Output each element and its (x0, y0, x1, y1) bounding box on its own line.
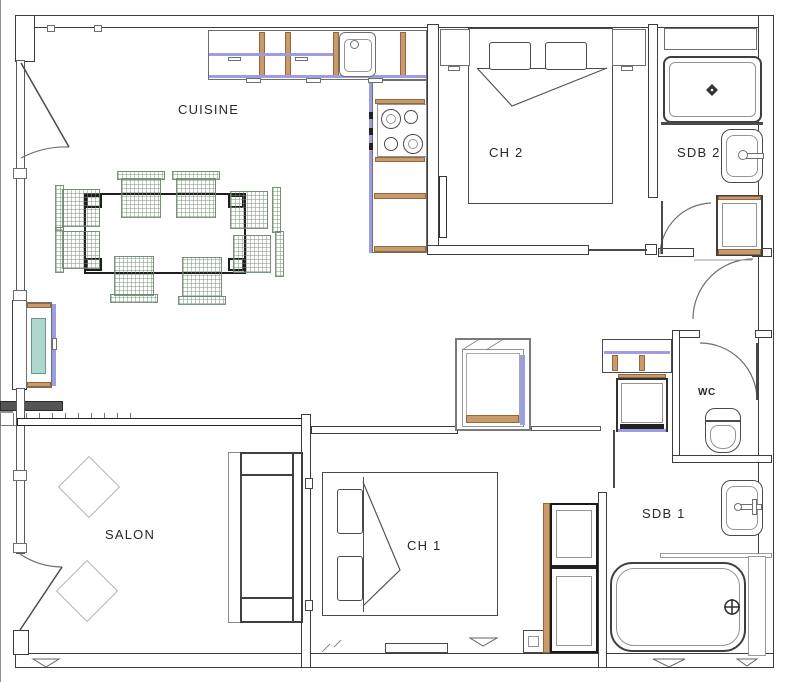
cooktop-burner-inner (408, 139, 418, 149)
floor-dash-mark (322, 640, 341, 652)
nightstand (612, 29, 646, 66)
window-sill-mark (13, 543, 27, 553)
closet-hall-accent (520, 355, 525, 425)
partition-sdb1-entry (613, 430, 615, 488)
shelf-unit-accent (604, 351, 670, 354)
window-left-upper (16, 60, 25, 303)
room-label-wc: WC (698, 387, 716, 398)
sdb2-shelf (664, 28, 757, 50)
vestibule-door-arc (693, 259, 753, 319)
dining-chair-back (55, 185, 64, 231)
bathtub-panel (748, 556, 766, 656)
radiator-kitchen-foot (94, 25, 102, 32)
dining-chair-back (178, 296, 226, 305)
wall-ch2-bottom (427, 245, 589, 255)
dining-chair-back (117, 171, 165, 180)
entry-door-leaf (21, 63, 69, 147)
pouf (56, 560, 118, 622)
salon-door-arc (20, 554, 62, 567)
washer-sdb2-trim (718, 249, 761, 255)
bed-ch1-sheet-line (363, 477, 364, 612)
wall-kitchen-ch2 (427, 24, 439, 253)
dining-chair (230, 191, 268, 229)
wall-ch2-sdb2 (648, 24, 658, 198)
counter-column-divider (375, 157, 425, 162)
pillow (337, 489, 363, 534)
wall-wc-top-right (755, 330, 772, 338)
pouf (58, 456, 120, 518)
dining-chair (176, 178, 216, 218)
window-sill-mark (13, 290, 27, 301)
wall-top (15, 15, 772, 28)
room-label-ch1: CH 1 (407, 538, 441, 553)
window-left-lower-glass (0, 239, 1, 401)
closet-hall-inner2 (466, 353, 520, 423)
wall-hall-connector (531, 426, 601, 431)
nightstand (440, 29, 470, 66)
washer-hall-trim (618, 374, 666, 378)
closet-hall-shelf (466, 415, 519, 423)
room-label-ch2: CH 2 (489, 145, 523, 160)
bathtub-sdb1-inner (616, 568, 740, 646)
sofa-backrest (292, 452, 303, 623)
dining-chair (62, 189, 100, 227)
cooktop-burner-inner (386, 114, 396, 124)
pillow (337, 556, 363, 601)
wall-sdb2-bottom-left (658, 248, 694, 257)
faucet-sdb1-handle (752, 499, 757, 515)
room-label-sdb1: SDB 1 (642, 506, 686, 521)
wall-ch1-top (311, 426, 458, 434)
faucet-sdb1-knob (734, 503, 742, 511)
cooktop-knob (369, 143, 373, 150)
window-left-upper-glass (0, 0, 1, 239)
dining-chair-back (110, 294, 158, 303)
dining-chair-back (275, 231, 284, 277)
cabinet-handle (246, 78, 261, 83)
wall-ch1-sdb1 (598, 492, 607, 668)
wall-cabinet-left-bottom (27, 382, 51, 387)
shower-sdb2-inner (669, 62, 756, 117)
floor-plan: CUISINE CH 2 SDB 2 SALON CH 1 SDB 1 WC (0, 0, 800, 682)
radiator-teal (31, 318, 46, 374)
bed-ch2-side (0, 582, 1, 682)
dining-chair (233, 235, 271, 273)
room-label-sdb2: SDB 2 (677, 145, 721, 160)
counter-column-divider (374, 193, 426, 199)
dining-chair (182, 257, 222, 297)
wall-wc-bottom (672, 455, 772, 463)
kitchen-sink-drain (350, 40, 359, 49)
cabinet-handle (295, 57, 308, 61)
cooktop-burner (404, 110, 418, 124)
cabinet-handle (228, 57, 241, 61)
side-unit-ch1-inner (528, 636, 539, 647)
shelf-unit-divider (639, 355, 645, 371)
salon-door-leaf (20, 567, 62, 630)
shelf-unit-divider (612, 355, 618, 371)
wall-left-bottom-block (13, 630, 29, 655)
radiator-ch2 (439, 176, 447, 238)
washer-hall-panel (620, 424, 664, 429)
nightstand-handle (621, 66, 633, 71)
cabinet-divider (400, 32, 406, 78)
pillow (545, 42, 587, 70)
wardrobe-ch1-inner (556, 576, 592, 646)
washer-hall-door (621, 383, 663, 423)
room-label-cuisine: CUISINE (178, 102, 239, 117)
window-sill-mark (13, 470, 27, 481)
shower-screen (661, 122, 763, 125)
sliding-door-ch2 (589, 249, 647, 251)
wall-left-upper-block (15, 15, 35, 62)
wall-switch (305, 600, 313, 611)
cabinet-handle (368, 78, 383, 83)
wall-switch (305, 478, 313, 489)
cooktop-burner (384, 137, 398, 151)
dining-chair (121, 178, 161, 218)
radiator-kitchen-foot (47, 25, 55, 32)
wall-cabinet-left-top (27, 303, 51, 308)
wall-salon-hall (17, 418, 304, 426)
entry-door-arc (21, 147, 69, 158)
counter-column-accent (369, 80, 372, 253)
wall-cabinet-knob (52, 338, 57, 350)
dining-chair-back (172, 171, 220, 180)
wardrobe-ch1-inner (556, 510, 592, 558)
bed-ch2-side (0, 426, 1, 582)
wardrobe-ch1-trim (543, 503, 550, 653)
wardrobe-ch1-divider (552, 565, 596, 569)
counter-edge-accent (209, 53, 333, 56)
cooktop-knob (369, 112, 373, 119)
cooktop-knob (369, 128, 373, 135)
dining-chair (62, 231, 100, 269)
nightstand-handle (448, 66, 460, 71)
faucet-sdb2-handle (738, 150, 748, 160)
sofa-seat-edge (240, 476, 242, 597)
counter-column-divider (374, 246, 426, 252)
wall-left-pilaster (12, 300, 27, 390)
bench-ch1 (385, 643, 448, 653)
washer-hall-accent (618, 429, 666, 432)
dining-chair-back (55, 227, 64, 273)
radiator-kitchen (0, 401, 63, 411)
cabinet-handle (306, 78, 321, 83)
washer-sdb2-door (722, 203, 757, 247)
washer-sdb2-trim (718, 196, 761, 200)
vent-mark (470, 638, 497, 646)
wall-wc-left (672, 330, 680, 462)
dining-chair-back (272, 187, 281, 233)
window-sill-mark (13, 168, 27, 179)
toilet-seat (710, 425, 736, 449)
sdb2-door-arc (660, 203, 711, 254)
wall-bottom (15, 653, 774, 668)
pillow (489, 42, 531, 70)
toilet-tank-line (706, 420, 740, 422)
dining-chair (114, 256, 154, 296)
room-label-salon: SALON (105, 527, 155, 542)
